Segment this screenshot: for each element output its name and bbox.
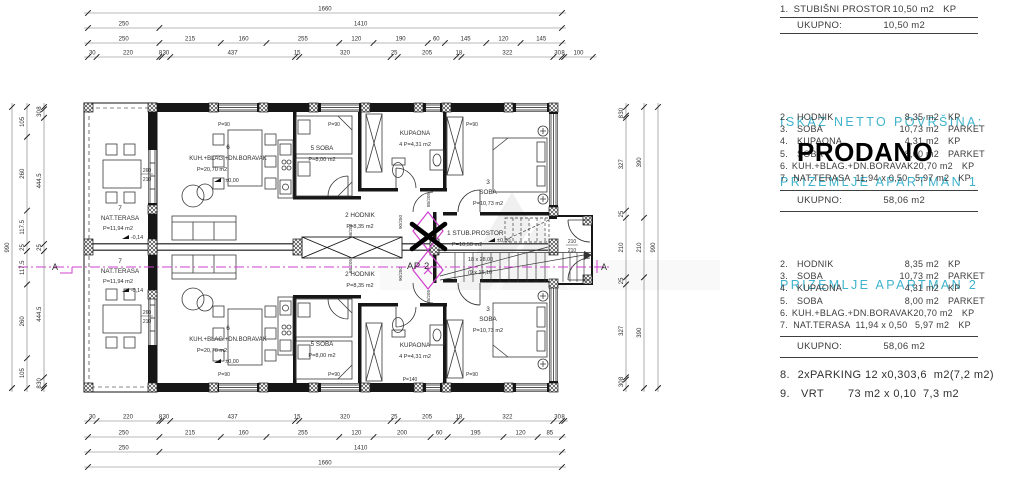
room-6-area: P=20,70 m2	[197, 167, 227, 173]
dim-label: 215	[185, 431, 196, 437]
dim-label: 18	[456, 415, 463, 421]
dim-row: 2501410	[84, 22, 566, 31]
parking-row: 8. 2xPARKING 12 x0,30 3,6 m2(7,2 m2)	[780, 366, 994, 385]
table-row: 1. STUBIŠNI PROSTOR 10,50 m2 KP	[780, 2, 980, 17]
svg-text:-0,14: -0,14	[131, 288, 143, 294]
svg-text:90/250: 90/250	[398, 215, 403, 229]
dim-label: 30	[619, 107, 625, 114]
dim-label: 160	[239, 431, 250, 437]
apartman2-total: UKUPNO: 58,06 m2	[780, 336, 980, 358]
svg-text:P=20,70 m2: P=20,70 m2	[197, 348, 227, 354]
dim-row: 30220830437153202520518322308	[84, 415, 568, 424]
dim-label: 260	[20, 316, 26, 327]
dim-label: 117.5	[20, 219, 26, 234]
svg-text:KUH.+BLAG.+DN.BORAVAK: KUH.+BLAG.+DN.BORAVAK	[189, 337, 266, 343]
room-5-area: P=8,00 m2	[308, 157, 335, 163]
dim-label: 255	[298, 431, 309, 437]
dim-row: 830444.525444.5308	[37, 103, 47, 392]
room-3-number: 3	[486, 179, 490, 186]
dim-label: 444.5	[37, 306, 43, 322]
dim-label: 120	[498, 37, 509, 43]
sold-stamp: PRODANO	[797, 137, 933, 168]
table-row: 4.KUPAONA4,31 m2KP	[780, 282, 994, 294]
dim-label: 1410	[354, 22, 368, 28]
dim-label: 322	[502, 415, 513, 421]
room-2-name: 2 HODNIK	[345, 212, 376, 219]
vrt-row: 9. VRT 73 m2 x 0,10 7,3 m2	[780, 385, 994, 404]
svg-text:210: 210	[568, 248, 577, 254]
room-3-area: P=10,73 m2	[473, 201, 503, 207]
dim-label: 205	[422, 415, 433, 421]
dim-label: 8	[561, 415, 565, 421]
dim-label: 250	[119, 22, 130, 28]
room-7-number: 7	[118, 205, 122, 212]
dim-label: 8	[619, 376, 625, 380]
dim-label: 25	[391, 51, 398, 57]
dim-label: 15	[294, 415, 301, 421]
svg-text:NAT.TERASA: NAT.TERASA	[101, 268, 140, 275]
svg-text:85/205: 85/205	[426, 193, 431, 207]
dim-label: 25	[391, 415, 398, 421]
ukupno-row: UKUPNO: 10,50 m2	[780, 18, 980, 33]
dim-label: 205	[422, 51, 433, 57]
table-row: 2.HODNIK8,35 m2KP	[780, 111, 994, 123]
dim-row: 1660	[84, 461, 566, 470]
dim-label: 220	[123, 51, 134, 57]
dim-label: 320	[340, 51, 351, 57]
dim-label: 437	[228, 415, 239, 421]
dim-label: 320	[340, 415, 351, 421]
dim-label: 145	[461, 37, 472, 43]
dim-label: 327	[619, 325, 625, 336]
dim-label: 30	[89, 51, 96, 57]
svg-text:4 P=4,31 m2: 4 P=4,31 m2	[399, 354, 431, 360]
svg-text:±0,00: ±0,00	[225, 359, 238, 365]
dim-label: 990	[5, 242, 11, 253]
dim-label: 15	[294, 51, 301, 57]
room-1-name: 1 STUB.PROSTOR	[447, 230, 504, 237]
svg-text:P=90: P=90	[466, 122, 478, 128]
level-arrow	[122, 235, 129, 239]
dim-label: 30	[619, 380, 625, 387]
dim-label: 1660	[318, 7, 332, 13]
svg-text:6: 6	[226, 325, 230, 332]
svg-text:210: 210	[143, 177, 152, 183]
dim-label: 30	[163, 415, 170, 421]
room-7-area: P=11,94 m2	[103, 226, 133, 232]
dim-label: 25	[619, 277, 625, 284]
terrace-outline	[84, 103, 157, 392]
dim-label: 60	[436, 431, 443, 437]
dim-label: 1660	[318, 461, 332, 467]
dim-label: 210	[619, 242, 625, 253]
dim-label: 220	[123, 415, 134, 421]
dim-label: 390	[637, 327, 643, 338]
svg-text:68/205: 68/205	[348, 224, 353, 238]
dim-label: 8	[561, 51, 565, 57]
dim-label: 100	[573, 51, 584, 57]
table-row: 6.KUH.+BLAG.+DN.BORAVAK20,70 m2KP	[780, 307, 994, 319]
floorplan-screenshot: 7 NAT.TERASA P=11,94 m2 -0,14 7 NAT.TERA…	[0, 0, 1024, 485]
dim-row: 2502151602551202006019512085	[84, 431, 566, 440]
table-row: 7.NAT.TERASA 11,94 x 0,505,97 m2KP	[780, 172, 994, 184]
dim-label: 444.5	[37, 173, 43, 189]
dim-label: 120	[516, 431, 527, 437]
apartman1-total: UKUPNO: 58,06 m2	[780, 190, 980, 212]
dim-label: 120	[351, 431, 362, 437]
dim-label: 250	[119, 431, 130, 437]
table-row: 5.SOBA8,00 m2PARKET	[780, 295, 994, 307]
dim-label: 60	[433, 37, 440, 43]
ap2-label: AP 2	[407, 261, 430, 272]
table-row: 3.SOBA10,73 m2PARKET	[780, 270, 994, 282]
svg-text:210: 210	[568, 239, 577, 245]
dim-label: 120	[351, 37, 362, 43]
stairwell-section: 1. STUBIŠNI PROSTOR 10,50 m2 KP UKUPNO: …	[780, 2, 980, 34]
svg-text:±0,00: ±0,00	[497, 238, 510, 244]
dim-label: 195	[471, 431, 482, 437]
svg-text:SOBA: SOBA	[479, 316, 497, 323]
dim-label: 105	[20, 367, 26, 378]
dim-label: 260	[20, 168, 26, 179]
dim-row: 30220830437153202520518322308100	[84, 51, 597, 60]
svg-text:85/205: 85/205	[426, 290, 431, 304]
table-row: 2.HODNIK8,35 m2KP	[780, 258, 994, 270]
dim-label: 215	[185, 37, 196, 43]
room-1-area: P=10,50 m2	[452, 242, 482, 248]
section-label-a-right: A	[601, 262, 607, 272]
extras-list: 8. 2xPARKING 12 x0,30 3,6 m2(7,2 m2) 9. …	[780, 366, 994, 404]
room-4-name: KUPAONA	[400, 130, 431, 137]
svg-text:P=10,73 m2: P=10,73 m2	[473, 328, 503, 334]
dim-label: 437	[228, 51, 239, 57]
dim-label: 250	[119, 37, 130, 43]
room-6-number: 6	[226, 144, 230, 151]
section-label-a-left: A	[52, 262, 58, 272]
svg-text:7: 7	[118, 258, 122, 265]
dim-row: 1660	[84, 7, 566, 16]
dim-label: 250	[119, 446, 130, 452]
svg-text:260: 260	[143, 168, 152, 174]
divider	[780, 33, 978, 34]
dim-label: 990	[651, 242, 657, 253]
dim-row: 2501410	[84, 446, 566, 455]
room-4-area: 4 P=4,31 m2	[399, 142, 431, 148]
svg-text:P=8,00 m2: P=8,00 m2	[308, 353, 335, 359]
room-3-name: SOBA	[479, 189, 497, 196]
dim-label: 85	[546, 431, 553, 437]
svg-text:P=11,94 m2: P=11,94 m2	[103, 279, 133, 285]
svg-text:P=90: P=90	[218, 372, 230, 378]
table-row: 7.NAT.TERASA 11,94 x 0,505,97 m2KP	[780, 319, 994, 331]
dim-label: 25	[619, 210, 625, 217]
svg-text:P=8,35 m2: P=8,35 m2	[346, 283, 373, 289]
room-6-name: KUH.+BLAG.+DN.BORAVAK	[189, 156, 266, 162]
room-5-name: 5 SOBA	[311, 145, 335, 152]
svg-text:90/250: 90/250	[398, 267, 403, 281]
dim-label: 160	[239, 37, 250, 43]
dim-label: 255	[298, 37, 309, 43]
dim-label: 327	[619, 159, 625, 170]
dim-label: 25	[20, 244, 26, 251]
dim-label: 105	[20, 116, 26, 127]
dim-row: 25021516025512019060145120145	[84, 37, 566, 46]
svg-text:KUPAONA: KUPAONA	[400, 342, 431, 349]
svg-text:P=90: P=90	[328, 122, 340, 128]
ukupno-row: UKUPNO: 58,06 m2	[780, 337, 980, 357]
dim-label: 30	[89, 415, 96, 421]
ukupno-row: UKUPNO: 58,06 m2	[780, 191, 980, 211]
room-7-name: NAT.TERASA	[101, 215, 140, 222]
stairs-dim-2: (9 x 15,10	[468, 270, 492, 276]
svg-text:3: 3	[486, 306, 490, 313]
lintel-x-beam	[302, 237, 402, 258]
svg-text:5 SOBA: 5 SOBA	[311, 341, 335, 348]
svg-text:P=90: P=90	[218, 122, 230, 128]
svg-text:P=140: P=140	[403, 377, 418, 383]
dim-row: 990	[651, 103, 661, 392]
dim-label: 117.5	[20, 260, 26, 275]
apartman2-list: 2.HODNIK8,35 m2KP 3.SOBA10,73 m2PARKET 4…	[780, 258, 994, 331]
level-terrace: -0,14	[131, 235, 143, 241]
dim-label: 145	[536, 37, 547, 43]
dim-label: 30	[37, 378, 43, 385]
dim-row: 105260117.525117.5260105	[20, 103, 30, 392]
svg-text:P=90: P=90	[466, 372, 478, 378]
dim-label: 30	[163, 51, 170, 57]
dim-label: 18	[456, 51, 463, 57]
svg-text:210: 210	[143, 319, 152, 325]
dim-label: 1410	[354, 446, 368, 452]
dim-label: 210	[637, 242, 643, 253]
level-zero: ±0,00	[225, 178, 238, 184]
dim-label: 8	[37, 106, 43, 110]
dim-row: 390210390	[637, 103, 647, 392]
stairs-dim-1: 18 x 28,00	[468, 257, 493, 263]
dim-label: 30	[37, 110, 43, 117]
svg-text:P=90: P=90	[328, 372, 340, 378]
table-row: 3.SOBA10,73 m2PARKET	[780, 123, 994, 135]
dim-label: 390	[637, 157, 643, 168]
dim-row: 3083272521025327830	[619, 103, 629, 392]
dim-label: 25	[37, 244, 43, 251]
svg-text:68/205: 68/205	[348, 259, 353, 273]
dim-label: 200	[397, 431, 408, 437]
dim-label: 322	[502, 51, 513, 57]
dim-row: 990	[5, 103, 15, 392]
svg-text:260: 260	[143, 310, 152, 316]
dim-label: 190	[396, 37, 407, 43]
